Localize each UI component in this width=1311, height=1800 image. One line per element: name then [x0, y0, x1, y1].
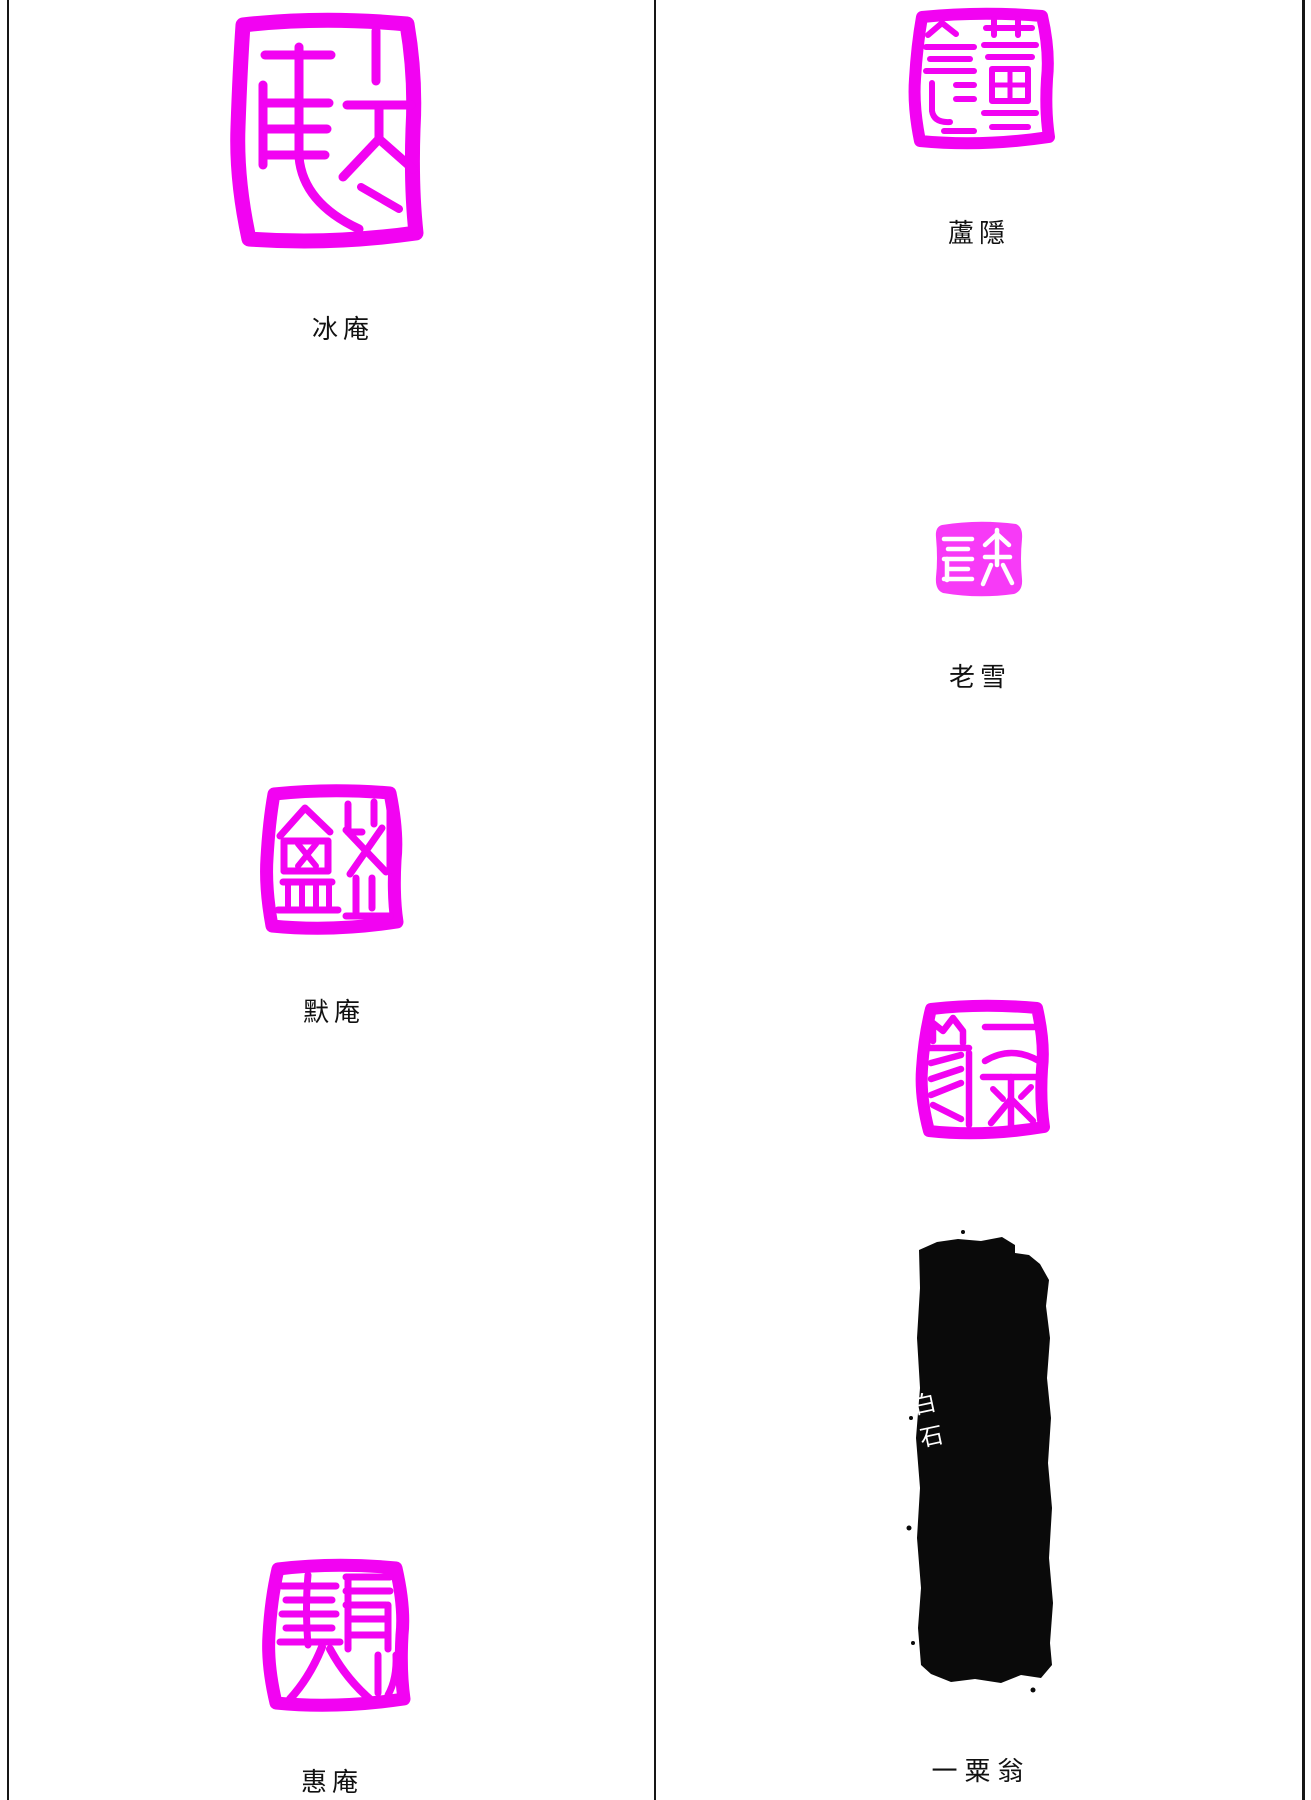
hui-an-seal-impression — [250, 1553, 417, 1717]
page-border-right — [1302, 0, 1305, 1800]
mo-an-caption: 默庵 — [303, 992, 365, 1029]
lu-yin-seal-art — [900, 3, 1062, 155]
bing-an-seal-impression — [213, 7, 427, 252]
bing-an-caption: 冰庵 — [312, 309, 374, 346]
lu-yin-seal-impression — [900, 3, 1062, 155]
lu-yin-caption: 蘆隱 — [948, 213, 1010, 250]
lao-xue-seal-impression — [930, 517, 1027, 600]
lao-xue-seal-art — [930, 517, 1027, 600]
mo-an-seal-art — [250, 778, 410, 940]
lao-xue-caption: 老雪 — [949, 657, 1011, 694]
hui-an-caption: 惠庵 — [301, 1762, 363, 1799]
mo-an-seal-impression — [250, 778, 410, 940]
hui-an-seal-art — [250, 1553, 417, 1717]
yi-su-weng-caption: 一粟翁 — [931, 1751, 1030, 1788]
bing-an-seal-art — [213, 7, 427, 252]
seal-catalog-page: 冰庵 默庵 — [0, 0, 1311, 1800]
yi-su-weng-seal-impression — [903, 993, 1057, 1147]
yi-su-weng-side-inscription-rubbing: 白石 — [903, 1228, 1060, 1697]
column-divider — [654, 0, 656, 1800]
page-border-left — [7, 0, 9, 1800]
side-inscription-art — [903, 1228, 1060, 1697]
yi-su-weng-seal-art — [903, 993, 1057, 1147]
